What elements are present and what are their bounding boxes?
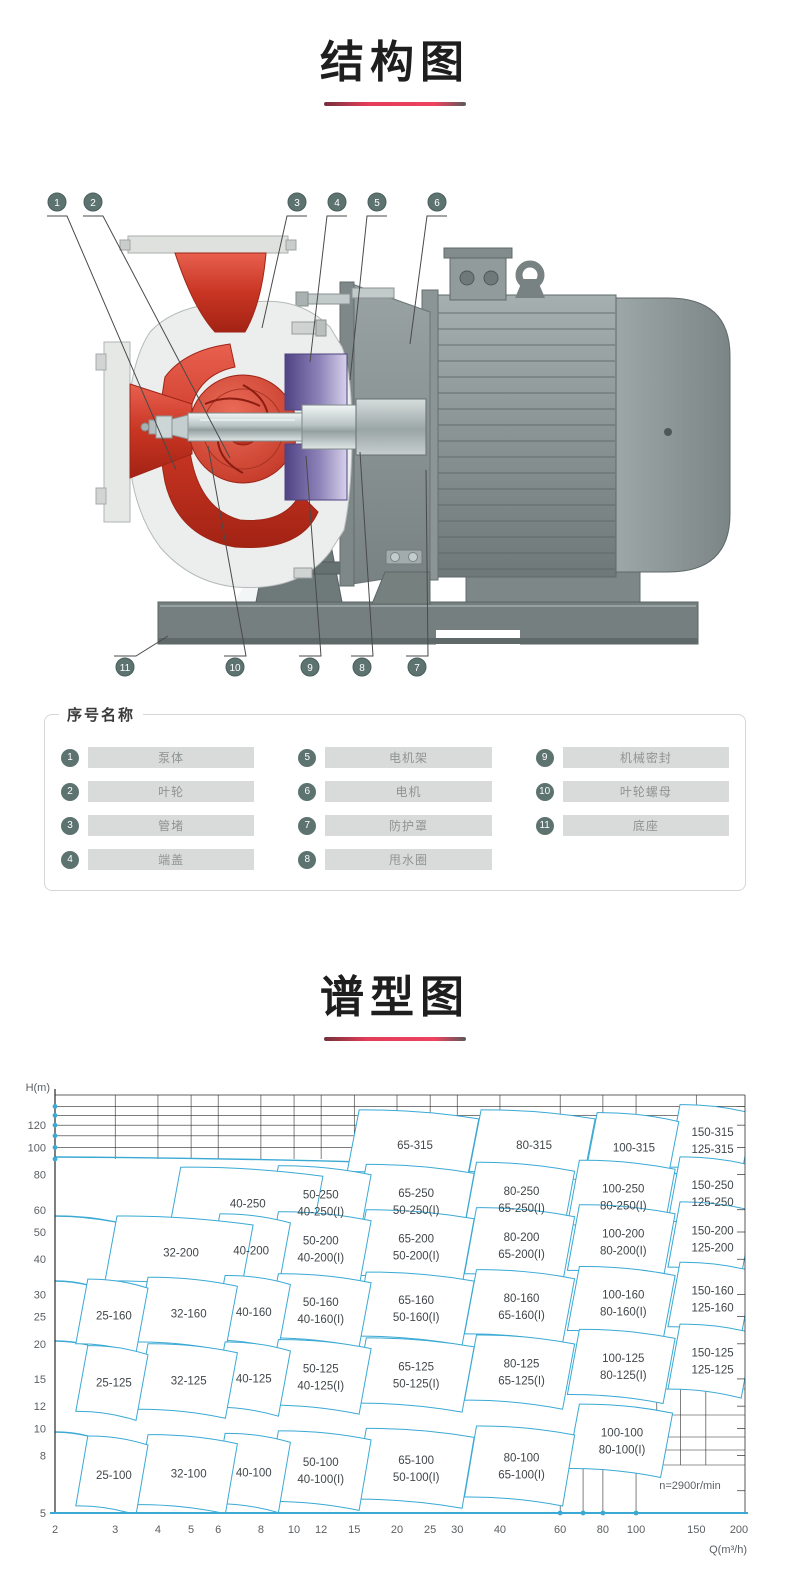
region-label: 50-125(I) [393, 1379, 440, 1391]
region-label: 50-100(I) [393, 1472, 440, 1484]
svg-text:1: 1 [54, 198, 60, 209]
motor-drain-dot [664, 428, 672, 436]
region-label: 32-100 [171, 1469, 207, 1481]
svg-text:3: 3 [294, 198, 300, 209]
legend-title: 序号名称 [59, 704, 143, 725]
legend-item: 3管堵 [61, 809, 254, 842]
region-label: 65-100 [398, 1455, 434, 1467]
legend-item: 5电机架 [298, 741, 491, 774]
region-label: 40-160 [236, 1307, 272, 1319]
region-label: 100-160 [602, 1289, 644, 1301]
title-underline [324, 102, 466, 106]
pump-region [354, 1338, 474, 1412]
region-label: 125-200 [691, 1242, 733, 1254]
region-label: 40-250 [230, 1199, 266, 1211]
lifting-eye-icon [515, 264, 545, 298]
region-label: 40-125(I) [297, 1380, 344, 1392]
y-tick-label: 50 [34, 1227, 46, 1239]
pump-region [567, 1329, 675, 1403]
coupling [356, 399, 426, 455]
legend-number-badge: 5 [298, 749, 316, 767]
x-axis-label: Q(m³/h) [709, 1544, 747, 1556]
legend-item: 10叶轮螺母 [536, 775, 729, 808]
y-tick-label: 30 [34, 1289, 46, 1301]
callout-1: 1 [48, 193, 66, 211]
stud-bolt [306, 294, 350, 304]
region-label: 100-100 [601, 1427, 643, 1439]
callout-4: 4 [328, 193, 346, 211]
svg-text:6: 6 [434, 198, 440, 209]
svg-text:4: 4 [334, 198, 340, 209]
spectrum-section-header: 谱型图 [0, 935, 790, 1041]
legend-part-name: 电机架 [325, 747, 491, 768]
x-tick-label: 60 [554, 1524, 566, 1536]
x-tick-label: 100 [627, 1524, 645, 1536]
callout-8: 8 [353, 658, 371, 676]
y-tick-label: 60 [34, 1205, 46, 1217]
region-label: 50-160(I) [393, 1312, 440, 1324]
pump-region [354, 1272, 474, 1345]
suction-flange [104, 342, 130, 522]
legend-part-name: 底座 [563, 815, 729, 836]
legend-part-name: 机械密封 [563, 747, 729, 768]
y-tick-label: 10 [34, 1423, 46, 1435]
x-tick-label: 150 [687, 1524, 705, 1536]
region-label: 50-200 [303, 1236, 339, 1248]
y-tick-label: 5 [40, 1508, 46, 1520]
discharge-flange [128, 236, 288, 253]
legend-number-badge: 8 [298, 851, 316, 869]
motor-body [422, 290, 730, 580]
region-label: 65-250(I) [498, 1203, 545, 1215]
svg-text:5: 5 [374, 198, 380, 209]
x-tick-label: 8 [258, 1524, 264, 1536]
callout-10: 10 [226, 658, 244, 676]
type-spectrum-chart: 65-31580-315100-315150-315125-31540-2505… [0, 1075, 790, 1577]
region-label: 80-100(I) [599, 1444, 646, 1456]
callout-3: 3 [288, 193, 306, 211]
legend-item: 11底座 [536, 809, 729, 842]
region-label: 100-125 [602, 1353, 644, 1365]
region-label: 80-125(I) [600, 1370, 647, 1382]
pump-region [567, 1404, 672, 1477]
legend-item: 7防护罩 [298, 809, 491, 842]
pump-region [465, 1426, 575, 1506]
legend-part-name: 端盖 [88, 849, 254, 870]
region-label: 25-160 [96, 1310, 132, 1322]
region-label: 80-250(I) [600, 1201, 647, 1213]
callout-11: 11 [116, 658, 134, 676]
y-tick-label: 15 [34, 1374, 46, 1386]
region-label: 65-160(I) [498, 1310, 545, 1322]
pump-structure-diagram: 1234561110987 [0, 132, 790, 692]
y-tick-label: 120 [28, 1120, 46, 1132]
structure-title: 结构图 [0, 26, 790, 90]
legend-number-badge: 1 [61, 749, 79, 767]
region-label: 100-200 [602, 1229, 644, 1241]
region-label: 80-160(I) [600, 1306, 647, 1318]
y-tick-label: 20 [34, 1339, 46, 1351]
region-label: 80-125 [504, 1359, 540, 1371]
legend-number-badge: 6 [298, 783, 316, 801]
x-tick-label: 30 [451, 1524, 463, 1536]
region-label: 150-160 [691, 1286, 733, 1298]
legend-grid: 1泵体2叶轮3管堵4端盖5电机架6电机7防护罩8甩水圈9机械密封10叶轮螺母11… [61, 741, 729, 876]
callout-2: 2 [84, 193, 102, 211]
title-underline [324, 1037, 466, 1041]
legend-part-name: 泵体 [88, 747, 254, 768]
x-tick-label: 3 [112, 1524, 118, 1536]
region-label: 125-160 [691, 1303, 733, 1315]
legend-item: 4端盖 [61, 843, 254, 876]
y-tick-label: 12 [34, 1401, 46, 1413]
impeller-nut [156, 416, 172, 438]
region-label: 50-125 [303, 1363, 339, 1375]
x-tick-label: 10 [288, 1524, 300, 1536]
callout-9: 9 [301, 658, 319, 676]
region-label: 125-250 [691, 1197, 733, 1209]
svg-text:2: 2 [90, 198, 96, 209]
region-label: 150-250 [691, 1180, 733, 1192]
region-label: 65-200(I) [498, 1249, 545, 1261]
legend-part-name: 甩水圈 [325, 849, 491, 870]
pump-region [567, 1266, 675, 1339]
region-label: 80-250 [504, 1186, 540, 1198]
region-label: 65-100(I) [498, 1470, 545, 1482]
x-tick-label: 5 [188, 1524, 194, 1536]
region-label: 80-315 [516, 1140, 552, 1152]
region-label: 32-200 [163, 1247, 199, 1259]
legend-item: 6电机 [298, 775, 491, 808]
region-label: 150-125 [691, 1348, 733, 1360]
region-label: 50-200(I) [393, 1251, 440, 1263]
legend-part-name: 叶轮螺母 [563, 781, 729, 802]
svg-text:10: 10 [229, 663, 241, 674]
drain-plug [294, 568, 312, 578]
legend-number-badge: 10 [536, 783, 554, 801]
legend-number-badge: 2 [61, 783, 79, 801]
pump-region [354, 1428, 474, 1508]
region-label: 32-160 [171, 1309, 207, 1321]
x-tick-label: 12 [315, 1524, 327, 1536]
legend-part-name: 电机 [325, 781, 491, 802]
region-label: 80-200 [504, 1232, 540, 1244]
legend-part-name: 防护罩 [325, 815, 491, 836]
x-tick-label: 4 [155, 1524, 161, 1536]
callout-5: 5 [368, 193, 386, 211]
y-tick-label: 25 [34, 1312, 46, 1324]
y-tick-label: 40 [34, 1254, 46, 1266]
callout-7: 7 [408, 658, 426, 676]
region-label: 150-315 [691, 1127, 733, 1139]
region-label: 25-125 [96, 1378, 132, 1390]
pump-region [465, 1270, 575, 1343]
x-tick-label: 40 [494, 1524, 506, 1536]
region-label: 40-100 [236, 1468, 272, 1480]
legend-number-badge: 4 [61, 851, 79, 869]
region-label: 65-160 [398, 1295, 434, 1307]
legend-part-name: 管堵 [88, 815, 254, 836]
region-label: 80-100 [504, 1453, 540, 1465]
region-label: 32-125 [171, 1376, 207, 1388]
region-label: 150-200 [691, 1225, 733, 1237]
region-label: 100-315 [613, 1143, 655, 1155]
region-label: 65-125 [398, 1362, 434, 1374]
region-label: 50-100 [303, 1457, 339, 1469]
x-tick-label: 6 [215, 1524, 221, 1536]
structure-section-header: 结构图 [0, 0, 790, 106]
svg-text:9: 9 [307, 663, 313, 674]
region-label: 65-250 [398, 1188, 434, 1200]
legend-item: 9机械密封 [536, 741, 729, 774]
legend-number-badge: 3 [61, 817, 79, 835]
y-tick-label: 100 [28, 1142, 46, 1154]
region-label: 40-250(I) [297, 1206, 344, 1218]
legend-number-badge: 11 [536, 817, 554, 835]
parts-legend-panel: 序号名称 1泵体2叶轮3管堵4端盖5电机架6电机7防护罩8甩水圈9机械密封10叶… [44, 714, 746, 891]
motor-terminal-box [444, 248, 512, 300]
speed-annotation: n=2900r/min [659, 1480, 720, 1492]
svg-text:8: 8 [359, 663, 365, 674]
region-label: 40-100(I) [297, 1474, 344, 1486]
spectrum-title: 谱型图 [0, 961, 790, 1025]
region-label: 125-315 [691, 1144, 733, 1156]
x-tick-label: 2 [52, 1524, 58, 1536]
legend-number-badge: 7 [298, 817, 316, 835]
region-label: 50-250 [303, 1189, 339, 1201]
region-label: 40-160(I) [297, 1314, 344, 1326]
region-label: 50-250(I) [393, 1205, 440, 1217]
x-tick-label: 15 [348, 1524, 360, 1536]
region-label: 80-200(I) [600, 1246, 647, 1258]
x-tick-label: 80 [597, 1524, 609, 1536]
x-tick-label: 20 [391, 1524, 403, 1536]
svg-text:7: 7 [414, 663, 420, 674]
region-label: 40-125 [236, 1374, 272, 1386]
legend-part-name: 叶轮 [88, 781, 254, 802]
region-label: 65-315 [397, 1140, 433, 1152]
region-label: 65-200 [398, 1234, 434, 1246]
region-label: 100-250 [602, 1184, 644, 1196]
legend-number-badge: 9 [536, 749, 554, 767]
legend-item: 8甩水圈 [298, 843, 491, 876]
legend-item: 1泵体 [61, 741, 254, 774]
y-tick-label: 8 [40, 1451, 46, 1463]
legend-item: 2叶轮 [61, 775, 254, 808]
svg-text:11: 11 [120, 663, 131, 674]
region-label: 40-200 [233, 1245, 269, 1257]
x-tick-label: 200 [730, 1524, 748, 1536]
region-label: 125-125 [691, 1365, 733, 1377]
pump-region [465, 1335, 575, 1409]
y-axis-label: H(m) [26, 1082, 50, 1094]
region-label: 40-200(I) [297, 1253, 344, 1265]
region-label: 50-160 [303, 1297, 339, 1309]
x-tick-label: 25 [424, 1524, 436, 1536]
region-label: 65-125(I) [498, 1376, 545, 1388]
y-tick-label: 80 [34, 1170, 46, 1182]
pump-region [668, 1324, 753, 1398]
callout-6: 6 [428, 193, 446, 211]
region-label: 80-160 [504, 1293, 540, 1305]
region-label: 25-100 [96, 1470, 132, 1482]
